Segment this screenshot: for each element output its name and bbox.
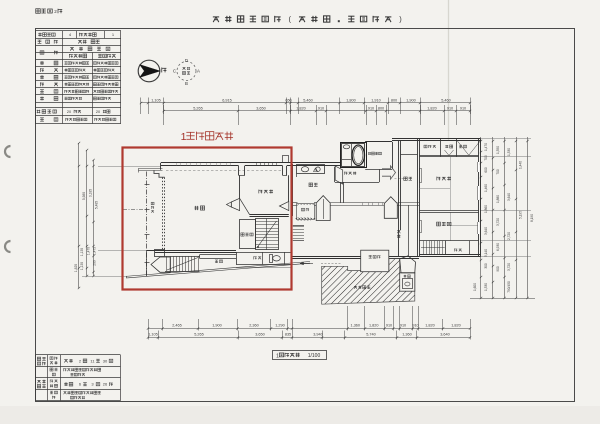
svg-text:1: 1 — [276, 353, 279, 359]
svg-text:5,740: 5,740 — [366, 333, 376, 337]
svg-text:910: 910 — [460, 106, 466, 110]
svg-text:1,820: 1,820 — [425, 324, 435, 328]
svg-text:200: 200 — [93, 260, 97, 266]
svg-text:1,330: 1,330 — [507, 148, 511, 156]
svg-text:1,360: 1,360 — [402, 333, 412, 337]
svg-text:5,265: 5,265 — [194, 333, 204, 337]
svg-text:3,640: 3,640 — [440, 333, 450, 337]
svg-text:8,190: 8,190 — [530, 214, 534, 222]
svg-text:1,330: 1,330 — [484, 283, 488, 291]
svg-text:26: 26 — [103, 382, 108, 387]
svg-text:910: 910 — [318, 106, 324, 110]
svg-text:11: 11 — [90, 358, 95, 363]
svg-text:5,460: 5,460 — [441, 98, 451, 102]
svg-text:20: 20 — [96, 110, 100, 114]
svg-text:910: 910 — [400, 324, 406, 328]
svg-text:1,105: 1,105 — [151, 98, 161, 102]
svg-text:1,130: 1,130 — [80, 248, 84, 256]
svg-text:2: 2 — [54, 9, 57, 14]
svg-text:1,900: 1,900 — [212, 324, 222, 328]
svg-text:1,440: 1,440 — [519, 161, 523, 169]
svg-text:5,460: 5,460 — [303, 98, 313, 102]
svg-text:30: 30 — [103, 358, 108, 363]
svg-text:6: 6 — [79, 382, 82, 387]
svg-text:910: 910 — [368, 106, 374, 110]
svg-text:1,360: 1,360 — [351, 324, 361, 328]
svg-text:1,290: 1,290 — [275, 324, 285, 328]
svg-text:1,860: 1,860 — [484, 205, 488, 213]
svg-text:835: 835 — [285, 333, 291, 337]
svg-text:1: 1 — [112, 32, 115, 37]
svg-text:1/100: 1/100 — [308, 353, 321, 359]
svg-text:3: 3 — [91, 382, 94, 387]
svg-text:1,460: 1,460 — [484, 184, 488, 192]
svg-text:2,720: 2,720 — [507, 232, 511, 240]
svg-text:3,720: 3,720 — [496, 218, 500, 226]
svg-text:6,930: 6,930 — [496, 243, 500, 251]
svg-text:600: 600 — [484, 167, 488, 173]
svg-text:3,640: 3,640 — [484, 227, 488, 235]
svg-text:650: 650 — [285, 98, 291, 102]
svg-text:1,470: 1,470 — [484, 143, 488, 151]
svg-text:1,900: 1,900 — [406, 98, 416, 102]
svg-text:1,820: 1,820 — [74, 264, 78, 272]
svg-text:1,105: 1,105 — [148, 333, 158, 337]
svg-text:3,650: 3,650 — [255, 333, 265, 337]
svg-text:1,820: 1,820 — [427, 106, 437, 110]
svg-text:3,720: 3,720 — [507, 263, 511, 271]
svg-text:1,350: 1,350 — [496, 146, 500, 154]
svg-text:5,265: 5,265 — [193, 106, 203, 110]
svg-text:1,820: 1,820 — [451, 324, 461, 328]
svg-text:5,485: 5,485 — [95, 201, 99, 209]
svg-text:1,820: 1,820 — [369, 324, 379, 328]
svg-text:3,185: 3,185 — [89, 189, 93, 197]
svg-text:1,800: 1,800 — [346, 98, 356, 102]
svg-text:C: C — [173, 69, 176, 74]
svg-text:5,980: 5,980 — [82, 192, 86, 200]
svg-text:790/450: 790/450 — [507, 281, 511, 293]
svg-text:20: 20 — [67, 110, 71, 114]
svg-text:1,600: 1,600 — [473, 283, 477, 291]
svg-text:700: 700 — [484, 155, 488, 161]
svg-text:6,915: 6,915 — [222, 98, 232, 102]
svg-text:800: 800 — [378, 106, 384, 110]
svg-text:1,470: 1,470 — [87, 247, 91, 255]
svg-text:(: ( — [289, 15, 292, 24]
svg-text:1: 1 — [181, 131, 187, 143]
svg-text:3,640: 3,640 — [507, 193, 511, 201]
svg-text:1,475: 1,475 — [93, 247, 97, 255]
svg-text:800: 800 — [391, 98, 397, 102]
svg-text:B: B — [185, 81, 188, 86]
svg-text:2,360: 2,360 — [249, 324, 259, 328]
svg-text:700: 700 — [496, 169, 500, 175]
svg-text:5,195: 5,195 — [519, 211, 523, 219]
svg-text:1,820: 1,820 — [296, 106, 306, 110]
svg-text:D: D — [185, 58, 188, 63]
svg-text:910: 910 — [412, 324, 418, 328]
svg-text:900: 900 — [496, 266, 500, 272]
svg-text:1,130: 1,130 — [80, 262, 84, 270]
svg-text:3,940: 3,940 — [313, 333, 323, 337]
svg-text:910: 910 — [447, 106, 453, 110]
svg-text:5,140: 5,140 — [484, 249, 488, 257]
svg-text:A: A — [197, 69, 200, 74]
svg-text:300: 300 — [484, 263, 488, 269]
svg-text:910: 910 — [386, 324, 392, 328]
svg-text:2,465: 2,465 — [172, 324, 182, 328]
svg-text:1,880: 1,880 — [496, 195, 500, 203]
svg-text:4: 4 — [69, 32, 72, 37]
svg-text:1,910: 1,910 — [371, 98, 381, 102]
svg-text:3,650: 3,650 — [256, 106, 266, 110]
svg-text:2: 2 — [79, 358, 82, 363]
svg-text:): ) — [399, 15, 402, 24]
